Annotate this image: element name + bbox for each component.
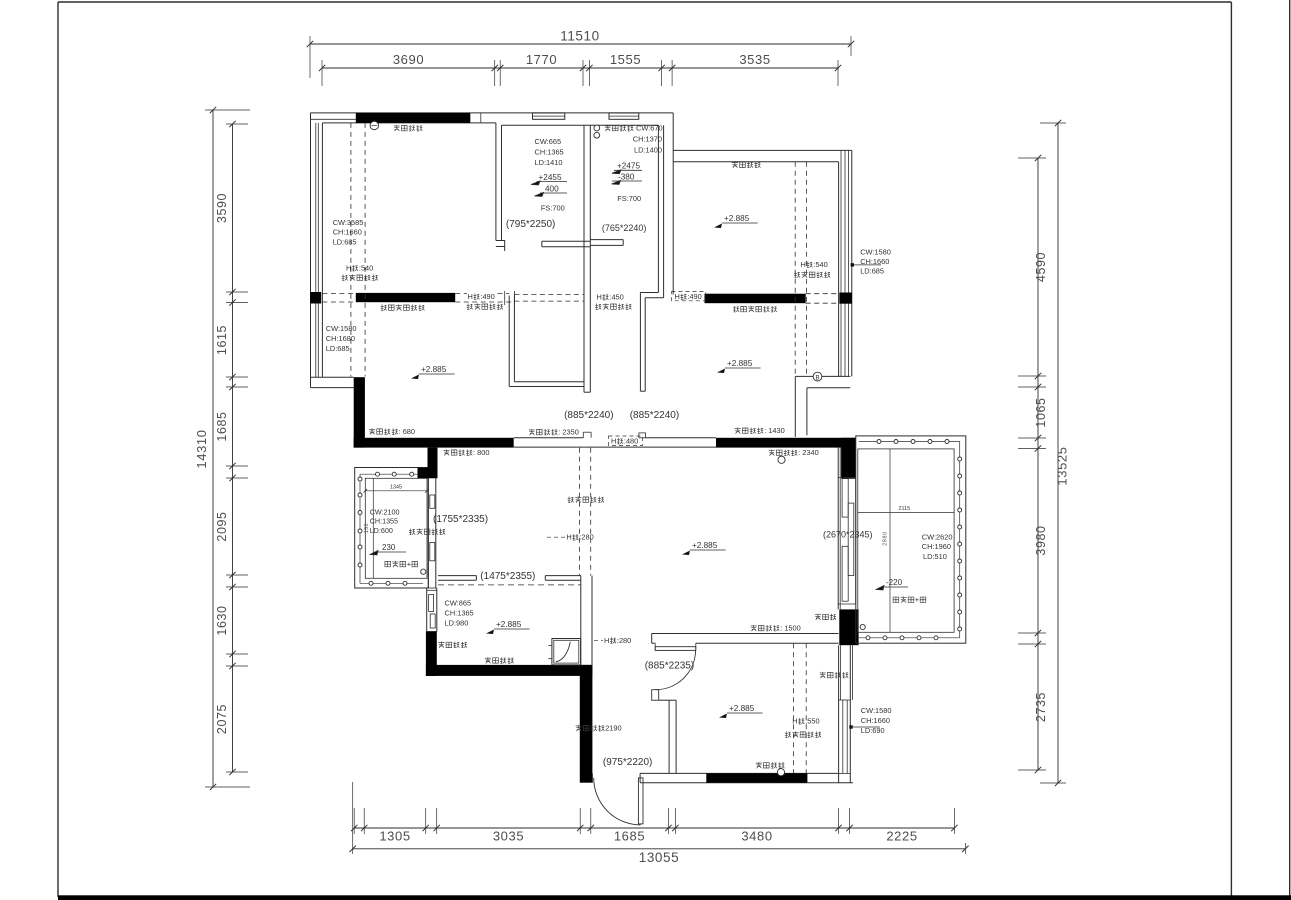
svg-text:+2475: +2475 — [617, 162, 640, 171]
svg-text:H: H — [675, 292, 680, 301]
svg-text:3590: 3590 — [215, 193, 229, 223]
svg-text:LD:980: LD:980 — [445, 619, 469, 628]
svg-text:4590: 4590 — [1034, 252, 1048, 282]
svg-text:CW:1580: CW:1580 — [861, 706, 892, 715]
svg-text:14310: 14310 — [194, 429, 209, 468]
svg-text:1630: 1630 — [215, 605, 229, 635]
svg-text:2880: 2880 — [883, 531, 889, 545]
svg-text:(1755*2335): (1755*2335) — [433, 514, 488, 525]
svg-text:H: H — [346, 264, 351, 273]
svg-text:3690: 3690 — [393, 52, 424, 67]
svg-text:3035: 3035 — [493, 829, 524, 844]
svg-text:+: + — [407, 560, 411, 569]
svg-text:LD:685: LD:685 — [326, 344, 350, 353]
svg-text:: 2350: : 2350 — [558, 428, 579, 437]
svg-text:+2.885: +2.885 — [421, 365, 447, 374]
svg-text:LD:685: LD:685 — [333, 238, 357, 247]
svg-text:CW:2620: CW:2620 — [922, 533, 953, 542]
svg-text:(2670*2345): (2670*2345) — [823, 530, 873, 540]
svg-text:H: H — [604, 636, 609, 645]
svg-text:13525: 13525 — [1055, 446, 1070, 485]
svg-text::540: :540 — [359, 264, 373, 273]
svg-text:CW:3585: CW:3585 — [333, 218, 364, 227]
svg-text:LD:685: LD:685 — [860, 267, 884, 276]
svg-text:3535: 3535 — [739, 52, 770, 67]
svg-text:(975*2220): (975*2220) — [603, 757, 652, 768]
svg-text:CW:670: CW:670 — [636, 124, 663, 133]
svg-text:(885*2235): (885*2235) — [645, 661, 694, 672]
svg-text:3980: 3980 — [1034, 525, 1048, 555]
svg-text:CH:1960: CH:1960 — [922, 542, 951, 551]
svg-text:(885*2240): (885*2240) — [630, 410, 679, 421]
svg-text:230: 230 — [382, 543, 396, 552]
svg-text:H: H — [468, 292, 473, 301]
svg-text:1345: 1345 — [390, 484, 402, 490]
svg-text:1770: 1770 — [526, 52, 557, 67]
svg-text:2735: 2735 — [1034, 692, 1048, 722]
svg-text::540: :540 — [813, 260, 827, 269]
svg-text::490: :490 — [480, 292, 494, 301]
svg-text:CH:1680: CH:1680 — [326, 334, 355, 343]
svg-text:: 1430: : 1430 — [764, 426, 785, 435]
svg-text:2115: 2115 — [899, 506, 911, 512]
svg-text:400: 400 — [545, 185, 559, 194]
svg-text:LD:600: LD:600 — [370, 526, 393, 535]
svg-text:CH:1660: CH:1660 — [333, 228, 362, 237]
svg-text::450: :450 — [609, 293, 623, 302]
svg-text:CH:1365: CH:1365 — [445, 609, 474, 618]
svg-text:CH:1660: CH:1660 — [861, 716, 890, 725]
svg-text:-220: -220 — [886, 578, 903, 587]
svg-text:CW:865: CW:865 — [445, 599, 472, 608]
svg-text:+2.885: +2.885 — [729, 704, 755, 713]
svg-text:CW:1580: CW:1580 — [860, 247, 891, 256]
svg-text:: 2340: : 2340 — [798, 448, 819, 457]
svg-text:1065: 1065 — [1034, 397, 1048, 427]
svg-text:+2.885: +2.885 — [496, 620, 522, 629]
svg-text:LD:1400: LD:1400 — [634, 145, 662, 154]
svg-text:1615: 1615 — [215, 325, 229, 355]
svg-text::550: :550 — [805, 717, 819, 726]
svg-text::280: :280 — [579, 533, 593, 542]
svg-text:H: H — [611, 437, 616, 446]
svg-text:3480: 3480 — [741, 829, 772, 844]
svg-text:CH:1355: CH:1355 — [370, 516, 398, 525]
svg-text:1685: 1685 — [614, 829, 645, 844]
svg-text:FS:700: FS:700 — [541, 204, 565, 213]
svg-text:2225: 2225 — [886, 829, 917, 844]
svg-text:LD:510: LD:510 — [923, 552, 947, 561]
svg-text:+2455: +2455 — [539, 173, 562, 182]
svg-text:H: H — [597, 293, 602, 302]
svg-text:2095: 2095 — [215, 511, 229, 541]
svg-text::280: :280 — [617, 636, 631, 645]
svg-text:LD:1410: LD:1410 — [535, 158, 563, 167]
svg-text:(765*2240): (765*2240) — [602, 223, 647, 233]
svg-text:1555: 1555 — [610, 52, 641, 67]
svg-text:+: + — [915, 595, 919, 604]
svg-text:(1475*2355): (1475*2355) — [480, 571, 535, 582]
svg-text:+2.885: +2.885 — [724, 214, 750, 223]
svg-text:+2.885: +2.885 — [727, 359, 753, 368]
svg-text:(885*2240): (885*2240) — [564, 410, 613, 421]
svg-text:1305: 1305 — [379, 829, 410, 844]
svg-text:: 1500: : 1500 — [780, 624, 801, 633]
svg-text:FS:700: FS:700 — [617, 194, 641, 203]
svg-text:(795*2250): (795*2250) — [506, 219, 555, 230]
svg-text:1685: 1685 — [215, 411, 229, 441]
svg-text:: 800: : 800 — [473, 448, 489, 457]
svg-text:H: H — [566, 533, 571, 542]
svg-text:CH:1365: CH:1365 — [535, 148, 564, 157]
svg-text:2075: 2075 — [215, 704, 229, 734]
svg-text:: 680: : 680 — [399, 427, 415, 436]
svg-text:13055: 13055 — [639, 850, 680, 865]
svg-text:CW:1580: CW:1580 — [326, 324, 357, 333]
svg-text:CW:665: CW:665 — [535, 137, 562, 146]
svg-text:2190: 2190 — [605, 724, 621, 733]
svg-text:11510: 11510 — [560, 29, 600, 44]
svg-text:H: H — [792, 717, 797, 726]
svg-text::480: :480 — [624, 437, 638, 446]
svg-text::490: :490 — [687, 292, 701, 301]
svg-text:CW:2100: CW:2100 — [370, 507, 400, 516]
svg-text:B: B — [815, 375, 819, 381]
svg-text:+2.885: +2.885 — [692, 541, 718, 550]
svg-text:H: H — [801, 260, 806, 269]
svg-text:CH:1370: CH:1370 — [633, 135, 662, 144]
